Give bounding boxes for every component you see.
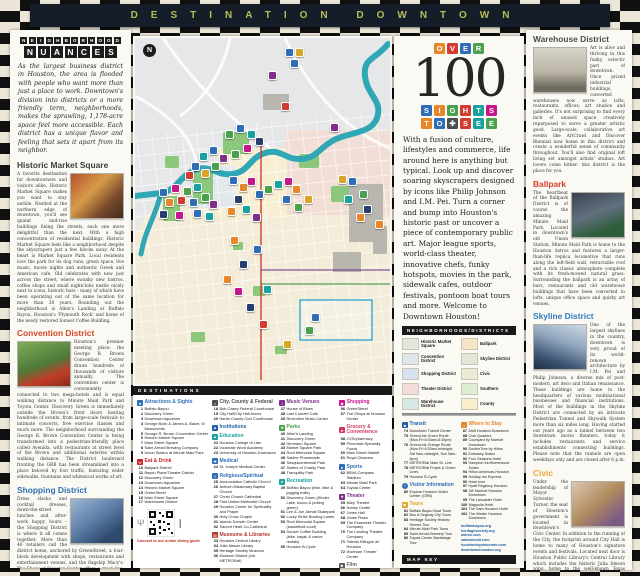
info-icon: i [402, 483, 408, 489]
map-marker[interactable] [344, 195, 353, 204]
left-panel: NEIGHBORHOOD NUANCES As the largest busi… [10, 30, 131, 568]
map-marker[interactable] [175, 211, 184, 220]
directory-item[interactable]: 50Discovery Green (Kinder Lake, bocce & … [279, 496, 336, 511]
map-marker[interactable] [242, 205, 251, 214]
legend-swatch [461, 368, 478, 380]
map-marker[interactable] [255, 190, 264, 199]
masthead-letter-tile: O [71, 37, 78, 44]
map-marker[interactable] [253, 245, 262, 254]
map-key-items: i Visitor Info Kiosk B B-Cycle Station M… [402, 566, 516, 568]
district-title: Historic Market Square [17, 161, 124, 170]
map-marker[interactable] [234, 195, 243, 204]
directory-section: ✚ Medical 24St. Joseph Medical Center [212, 458, 276, 470]
map-marker[interactable] [290, 59, 299, 68]
directory-item[interactable]: 36Museum District (via METRORail) [212, 554, 276, 564]
map-marker[interactable] [171, 184, 180, 193]
banner-title: DESTINATION DOWNTOWN [131, 10, 523, 21]
map-key-item: ♞ Dog Run [496, 566, 516, 568]
masthead-letter-tile: E [29, 37, 36, 44]
tour-websites: buffalobayou.orgheritagesociety.orgastro… [461, 524, 516, 552]
map-marker[interactable] [252, 213, 261, 222]
directory-item[interactable]: 55Houston B-Cycle [279, 545, 336, 550]
map-marker[interactable] [225, 130, 234, 139]
district-title: Skyline District [533, 312, 625, 321]
transit-title: Transit [410, 422, 426, 428]
masthead-letter-tile: A [51, 46, 63, 58]
masthead-letter-tile: N [24, 46, 36, 58]
directory-column-2: ⌂ City, County & Federal 18Bob Casey Fed… [212, 398, 276, 568]
directory-section: ♣ Parks 40Allen's Landing 41Discovery Gr… [279, 425, 336, 476]
stay-header: ⌂ Where to Stay [461, 422, 516, 428]
directory-section-header: ● Grocery & Convenience [339, 425, 388, 436]
flag-icon: ▶ [402, 502, 408, 508]
district-photo [70, 173, 124, 219]
directory-section-header: ● Recreation [279, 479, 336, 485]
map-marker[interactable] [283, 340, 292, 349]
map-marker[interactable] [268, 71, 277, 80]
map-key-item: B B-Cycle Station [425, 566, 445, 568]
map-marker[interactable] [193, 183, 202, 192]
info-lists: ■ Transit 74Downtown Transit Center 75Gr… [402, 419, 516, 552]
qr-note: Connect to our online dining guide [137, 539, 209, 543]
letter-tile: S [421, 105, 432, 116]
district-photo [571, 192, 625, 238]
map-marker[interactable] [282, 195, 291, 204]
map-marker[interactable] [259, 320, 268, 329]
section-title: Eat & Drink [145, 459, 172, 465]
legend-label: Historic Market Square [421, 340, 457, 349]
map-marker[interactable] [159, 188, 168, 197]
map-marker[interactable] [230, 236, 239, 245]
section-title: City, County & Federal [220, 400, 273, 406]
directory-section: ▤ Museums & Libraries 33Houston Central … [212, 532, 276, 564]
map-marker[interactable] [165, 198, 174, 207]
banner: DESTINATION DOWNTOWN [30, 4, 610, 27]
map-marker[interactable] [234, 287, 243, 296]
district-title: Warehouse District [533, 35, 625, 44]
directory-section-header: ▲ Institutions [212, 425, 276, 431]
map-marker[interactable] [292, 185, 301, 194]
transit-item[interactable]: 79Houston B-Cycle [402, 475, 457, 480]
legend-label: Shopping District [421, 372, 456, 377]
map-marker[interactable] [236, 124, 245, 133]
masthead-nuances: NUANCES [17, 46, 124, 58]
neighborhood-intro: As the largest business district in Hous… [18, 63, 123, 155]
district-title: Ballpark [533, 180, 625, 189]
letter-tile: G [447, 105, 458, 116]
district-title: Shopping District [17, 486, 124, 495]
map-marker[interactable] [159, 210, 168, 219]
visitor-item[interactable]: 80Explore Houston Visitor Center (GRB) [402, 490, 457, 499]
directory-section: ● Recreation 49Buffalo Bayou (hike, bike… [279, 479, 336, 550]
district-section: Convention District Houston's premier me… [17, 329, 124, 480]
map-key-item: $ GreenLink Stop [472, 566, 492, 568]
info-panel: OVER 100 SIGHTS TO✚SEE With a fusion of … [394, 36, 524, 568]
directory-section: ★ Attractions & Sights 1Buffalo Bayou 2D… [137, 400, 209, 456]
map-marker[interactable] [243, 144, 252, 153]
map-marker[interactable] [295, 48, 304, 57]
directory-column-1: ★ Attractions & Sights 1Buffalo Bayou 2D… [137, 398, 209, 568]
neighborhoods-districts-bar: NEIGHBORHOODS/DISTRICTS [402, 326, 516, 335]
map-key-bar: MAP KEY [402, 555, 516, 564]
directory-item[interactable]: 9Union Station at Minute Maid Park [137, 451, 209, 456]
directory-item[interactable]: 72Wortham Theater Center [339, 550, 388, 560]
map-marker[interactable] [209, 146, 218, 155]
map-marker[interactable] [274, 180, 283, 189]
map-marker[interactable] [285, 48, 294, 57]
directory-item[interactable]: 17Warehouse District [137, 500, 209, 505]
downtown-map[interactable]: N [135, 38, 390, 384]
legend-swatch [402, 368, 419, 380]
map-marker[interactable] [311, 313, 320, 322]
directory-section: ♪ Music Venues 37House of Blues 38Last C… [279, 400, 336, 422]
map-marker[interactable] [281, 102, 290, 111]
letter-tile: T [473, 105, 484, 116]
map-marker[interactable] [359, 190, 368, 199]
masthead-letter-tile: O [97, 37, 104, 44]
map-marker[interactable] [305, 326, 314, 335]
hundred-numeral: 100 [402, 56, 516, 103]
legend-label: Ballpark [480, 342, 497, 347]
masthead-letter-tile: G [46, 37, 53, 44]
masthead-letter-tile: B [63, 37, 70, 44]
directory-section-header: ■ Film [339, 563, 388, 568]
map-marker[interactable] [185, 171, 194, 180]
section-icon: ● [279, 479, 285, 485]
map-marker[interactable] [193, 209, 202, 218]
directory-item[interactable]: 32Sacred Heart Co-Cathedral [212, 525, 276, 530]
legend-label: Theater District [421, 387, 452, 392]
section-title: Institutions [220, 425, 247, 431]
legend-swatch [461, 383, 478, 395]
map-key-item: M METRORail Stop [449, 566, 469, 568]
legend-swatch [461, 353, 478, 365]
section-title: Sports [347, 465, 363, 471]
section-icon: ● [339, 427, 345, 433]
section-icon: ♣ [279, 425, 285, 431]
letter-tile: E [486, 118, 497, 129]
section-icon: ★ [339, 494, 345, 500]
legend-label: Warehouse District [421, 400, 457, 409]
letter-tile: I [434, 105, 445, 116]
transit-item[interactable]: 76GreenLink Orange Route (Mon-Fri 6:30am… [402, 443, 457, 461]
legend-item: Historic Market Square [402, 338, 457, 350]
map-marker[interactable] [227, 207, 236, 216]
map-marker[interactable] [219, 154, 228, 163]
masthead-letter-tile: N [20, 37, 27, 44]
map-marker[interactable] [223, 275, 232, 284]
map-marker[interactable] [205, 212, 214, 221]
transit-item[interactable]: 78METRORail Purple & Green Lines [402, 466, 457, 475]
legend-item: Convention District [402, 353, 457, 365]
hotel-item[interactable]: 102The Westin Houston Downtown [461, 512, 516, 521]
district-section: Ballpark The heartbeat of the Ballpark D… [533, 180, 625, 308]
letter-tile: S [486, 105, 497, 116]
legend-label: Skyline District [480, 357, 510, 362]
masthead-letter-tile: R [80, 37, 87, 44]
legend-item: Skyline District [461, 353, 516, 365]
bus-icon: ■ [402, 422, 408, 428]
directory-section: ★ Theater 65Alley Theatre 66Hobby Center… [339, 494, 388, 560]
map-marker[interactable] [338, 175, 347, 184]
legend-swatch [402, 353, 419, 365]
section-icon: ■ [339, 563, 345, 568]
district-legend: Historic Market Square Ballpark Conventi… [402, 338, 516, 410]
map-marker[interactable] [264, 185, 273, 194]
district-section: Skyline District One of the largest skyl… [533, 312, 625, 463]
section-title: Recreation [287, 479, 313, 485]
masthead-letter-tile: O [105, 37, 112, 44]
directory-section: ● Sports 62BBVA Compass Stadium 63Minute… [339, 464, 388, 491]
directory-item[interactable]: 57The Shops at Houston Center [339, 412, 388, 422]
directory-section: ■ Film 73Sundance Cinemas at Bayou Place [339, 563, 388, 568]
district-photo [533, 47, 587, 93]
letter-tile: O [434, 118, 445, 129]
section-icon: ▲ [212, 434, 218, 440]
directory-item[interactable]: 20Harris County Civil Courthouse [212, 417, 276, 422]
masthead-letter-tile: D [114, 37, 121, 44]
section-title: Theater [347, 494, 365, 500]
directory-section-header: ♣ Parks [279, 425, 336, 431]
map-marker[interactable] [189, 198, 198, 207]
district-photo [571, 481, 625, 527]
map-marker[interactable] [246, 303, 255, 312]
qr-code[interactable] [147, 509, 175, 537]
directory-section: ▲ Education 21Houston College of Law 22I… [212, 434, 276, 456]
section-title: Parks [287, 425, 301, 431]
map-marker[interactable] [239, 260, 248, 269]
masthead-letter-tile: H [88, 37, 95, 44]
map-marker[interactable] [211, 162, 220, 171]
tours-header: ▶ Tours [402, 502, 457, 508]
map-marker[interactable] [348, 177, 357, 186]
map-marker[interactable] [304, 195, 313, 204]
district-section: Civic Under the leadership of Mayor Sylv… [533, 469, 625, 570]
legend-item: Ballpark [461, 338, 516, 350]
directory-section: Ψ Eat & Drink 10Ballpark District 11Bayo… [137, 459, 209, 505]
map-marker[interactable] [294, 203, 303, 212]
directory-section: ▲ Institutions [212, 425, 276, 431]
masthead-neighborhood: NEIGHBORHOOD [17, 37, 124, 44]
directory-item[interactable]: 39Revention Music Center [279, 417, 336, 422]
hotel-item[interactable]: 89Courtyard by Marriott Downtown [461, 438, 516, 447]
masthead-letter-tile: S [105, 46, 117, 58]
tour-item[interactable]: 86Toyota Center Backstage Tour [402, 536, 457, 545]
masthead-letter-tile: N [65, 46, 77, 58]
divider [402, 413, 516, 416]
legend-item: Southern [461, 383, 516, 395]
map-marker[interactable] [247, 177, 256, 186]
letter-tile: E [473, 118, 484, 129]
directory-section-header: ▲ Education [212, 434, 276, 440]
directory-section-header: ★ Theater [339, 494, 388, 500]
legend-item: Theater District [402, 383, 457, 395]
map-marker[interactable] [263, 285, 272, 294]
masthead-letter-tile: H [54, 37, 61, 44]
tour-item[interactable]: 83Heritage Society Historic Homes Tour [402, 518, 457, 527]
directory-column-3: ♪ Music Venues 37House of Blues 38Last C… [279, 398, 336, 568]
visitor-header: i Visitor Information [402, 483, 457, 489]
destinations-bar: DESTINATIONS [133, 386, 392, 395]
legend-swatch [402, 383, 419, 395]
directory-item[interactable]: 54Sunset Coffee Building (bike, kayak & … [279, 530, 336, 545]
letter-tile: S [460, 118, 471, 129]
map-marker[interactable] [177, 196, 186, 205]
website-link[interactable]: downtownhouston.org [461, 548, 516, 553]
info-list-right: ⌂ Where to Stay 87Aloft Houston Downtown… [461, 419, 516, 552]
map-marker[interactable] [191, 162, 200, 171]
map-base [135, 38, 390, 384]
legend-label: Civic [480, 372, 490, 377]
directory-section: ◆ Shopping 56GreenStreet 57The Shops at … [339, 400, 388, 422]
letter-tile: T [421, 118, 432, 129]
section-icon: ▲ [212, 425, 218, 431]
district-section: Shopping District Dress slacks and cockt… [17, 486, 124, 568]
letter-tile: ✚ [447, 118, 458, 129]
map-marker[interactable] [255, 137, 264, 146]
destinations-directory: ★ Attractions & Sights 1Buffalo Bayou 2D… [133, 395, 392, 568]
map-marker[interactable] [183, 187, 192, 196]
legend-swatch [402, 398, 419, 410]
section-title: Attractions & Sights [145, 400, 193, 406]
hotel-item[interactable]: 93Hampton Inn/Homewood Suites [461, 461, 516, 470]
directory-section: ● Grocery & Convenience 58CVS/pharmacy 5… [339, 425, 388, 462]
right-panel: Warehouse District Art is alive and thri… [526, 30, 632, 570]
district-section: Historic Market Square A favorite destin… [17, 161, 124, 324]
legend-swatch [402, 338, 419, 350]
map-key-item: i Visitor Info Kiosk [402, 566, 422, 568]
map-marker[interactable] [231, 150, 240, 159]
masthead-letter-tile: U [38, 46, 50, 58]
directory-section: ⌂ City, County & Federal 18Bob Casey Fed… [212, 400, 276, 422]
district-photo [70, 498, 124, 544]
map-marker[interactable] [201, 169, 210, 178]
directory-item[interactable]: 64Toyota Center [339, 486, 388, 491]
masthead-letter-tile: C [78, 46, 90, 58]
legend-swatch [461, 398, 478, 410]
info-list-left: ■ Transit 74Downtown Transit Center 75Gr… [402, 419, 457, 552]
map-marker[interactable] [199, 152, 208, 161]
hotel-item[interactable]: 98JW Marriott Houston Downtown [461, 489, 516, 498]
district-photo [17, 341, 71, 387]
masthead-letter-tile: I [37, 37, 44, 44]
legend-label: Convention District [421, 355, 457, 364]
map-marker[interactable] [229, 176, 238, 185]
map-marker[interactable] [356, 213, 365, 222]
transit-item[interactable]: 75GreenLink Green Route (Mon-Fri 6:30am-… [402, 434, 457, 443]
map-marker[interactable] [209, 200, 218, 209]
bed-icon: ⌂ [461, 422, 467, 428]
legend-item: Civic [461, 368, 516, 380]
visitor-title: Visitor Information [410, 483, 454, 489]
masthead-letter-tile: E [92, 46, 104, 58]
north-arrow-icon: N [143, 44, 156, 57]
map-marker[interactable] [375, 220, 384, 229]
district-title: Civic [533, 469, 625, 478]
legend-item: Shopping District [402, 368, 457, 380]
legend-label: Southern [480, 387, 498, 392]
directory-item[interactable]: 61Royal Cleaners [339, 456, 388, 461]
section-title: Museums & Libraries [220, 533, 271, 539]
section-title: Music Venues [287, 400, 320, 406]
directory-item[interactable]: 23University of Houston-Downtown [212, 451, 276, 456]
directory-item[interactable]: 48Tranquility Park [279, 471, 336, 476]
fork-icon: Ψ [137, 518, 145, 528]
welcome-intro: With a fusion of culture, lifestyles and… [403, 135, 515, 322]
legend-item: Warehouse District [402, 398, 457, 410]
directory-section: † Religious/Spiritual 25Annunciation Cat… [212, 473, 276, 529]
district-section: Warehouse District Art is alive and thri… [533, 35, 625, 175]
directory-item[interactable]: 24St. Joseph Medical Center [212, 465, 276, 470]
stay-title: Where to Stay [469, 422, 502, 428]
letter-tile: H [460, 105, 471, 116]
district-title: Convention District [17, 329, 124, 338]
directory-column-4: ◆ Shopping 56GreenStreet 57The Shops at … [339, 398, 388, 568]
legend-swatch [461, 338, 478, 350]
legend-label: County [480, 402, 494, 407]
knife-icon: ❙ [177, 518, 185, 529]
tosee-tiles: TO✚SEE [402, 118, 516, 129]
district-photo [533, 324, 587, 370]
section-title: Grocery & Convenience [347, 425, 389, 436]
section-title: Education [220, 434, 244, 440]
tours-title: Tours [410, 502, 424, 508]
map-panel: N [133, 36, 392, 568]
legend-item: County [461, 398, 516, 410]
transit-header: ■ Transit [402, 422, 457, 428]
qr-block: Ψ ❙ [137, 509, 209, 537]
section-title: Medical [220, 459, 238, 465]
section-title: Film [347, 563, 357, 568]
section-title: Shopping [347, 400, 370, 406]
map-marker[interactable] [330, 123, 339, 132]
section-title: Religious/Spiritual [220, 474, 264, 480]
